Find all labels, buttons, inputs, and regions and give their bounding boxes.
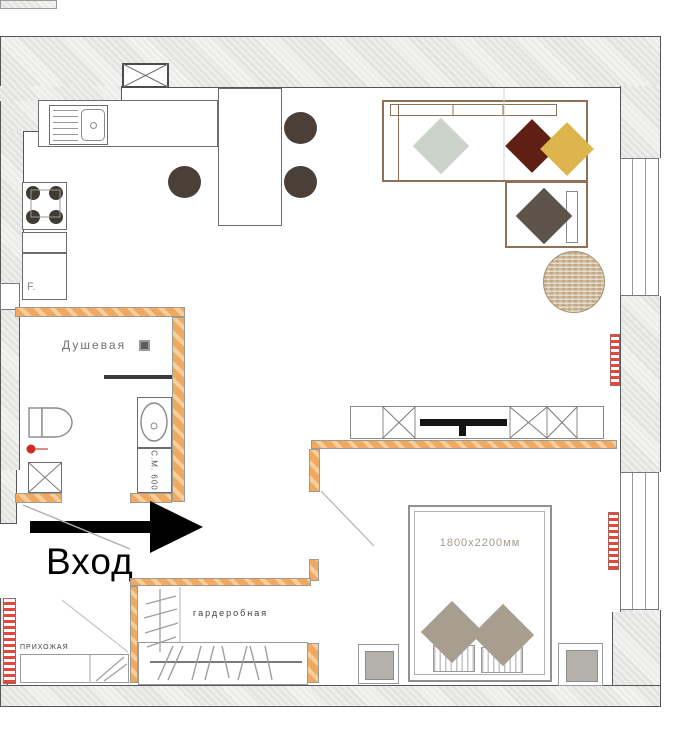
kitchen-island xyxy=(218,88,282,226)
sink-faucet-icon xyxy=(90,122,97,129)
bar-stool-icon xyxy=(284,166,317,198)
window-right-lower xyxy=(620,472,659,610)
washing-machine-600: С.М. 600 xyxy=(137,448,172,493)
bathroom-wall-right xyxy=(172,317,185,502)
wardrobe-label: гардеробная xyxy=(193,608,268,618)
wardrobe-wall-top xyxy=(130,578,311,586)
kitchen-base-cabinet xyxy=(22,232,67,253)
bar-stool-icon xyxy=(168,166,201,198)
tv-wall xyxy=(311,440,617,449)
stove-burner-icon xyxy=(26,210,40,224)
wall-bottom xyxy=(0,685,661,707)
wardrobe-lower-section xyxy=(138,642,308,685)
ventilation-shaft-icon xyxy=(122,63,169,88)
stove-burner-icon xyxy=(49,186,63,200)
hall-door-swing-icon xyxy=(62,600,128,652)
bar-stool-icon xyxy=(284,112,317,144)
hallway-cabinet xyxy=(20,654,129,683)
nightstand-left xyxy=(358,644,399,684)
bathroom-wall-bottom-left xyxy=(15,493,62,503)
wall-fragment-top-left xyxy=(0,0,57,9)
wardrobe-wall-right-stub xyxy=(307,643,319,683)
sink-drainer-icon xyxy=(53,109,78,141)
radiator-living xyxy=(610,334,620,386)
nightstand-top-icon xyxy=(566,650,598,682)
hallway-label: ПРИХОЖАЯ xyxy=(20,644,69,651)
wall-kitchen-step xyxy=(0,101,41,132)
wall-right-upper xyxy=(620,86,661,158)
bathroom-wall-bottom-right xyxy=(130,493,172,503)
radiator-bedroom xyxy=(608,512,619,570)
fridge-label: F. xyxy=(27,281,36,293)
wall-bottom-right-block xyxy=(612,612,660,685)
sofa-armrest-line xyxy=(398,104,399,180)
wall-right-mid xyxy=(620,296,661,472)
round-rug xyxy=(543,251,605,313)
bedroom-door-swing-icon xyxy=(321,491,374,546)
toilet-icon xyxy=(29,408,72,437)
entrance-label: Вход xyxy=(46,541,134,583)
radiator-hallway xyxy=(3,598,16,684)
window-right-upper xyxy=(620,158,659,296)
wall-left-upper xyxy=(0,131,24,283)
nightstand-right xyxy=(558,643,603,686)
wall-top xyxy=(0,36,661,88)
floor-plan: F. Душевая С.М. 600 Вход гардеробная ПРИ… xyxy=(0,0,691,752)
tv-console xyxy=(350,406,604,439)
stove-burner-icon xyxy=(26,186,40,200)
window-left xyxy=(0,283,20,310)
bed-size-label: 1800x2200мм xyxy=(418,537,542,549)
shower-room-label: Душевая xyxy=(62,338,126,352)
wardrobe-wall-left xyxy=(130,586,138,683)
stove-burner-icon xyxy=(49,210,63,224)
water-valve-icon xyxy=(27,445,49,454)
bathroom-wall-top xyxy=(15,307,185,317)
washing-machine-label: С.М. 600 xyxy=(150,450,159,490)
washbasin-cabinet xyxy=(137,397,172,448)
shower-head-icon xyxy=(139,340,150,351)
tv-wall-return xyxy=(309,449,320,492)
wall-left-mid xyxy=(0,310,20,470)
sofa-backrest xyxy=(390,104,557,116)
washing-machine-box xyxy=(28,462,62,493)
nightstand-top-icon xyxy=(365,651,394,680)
